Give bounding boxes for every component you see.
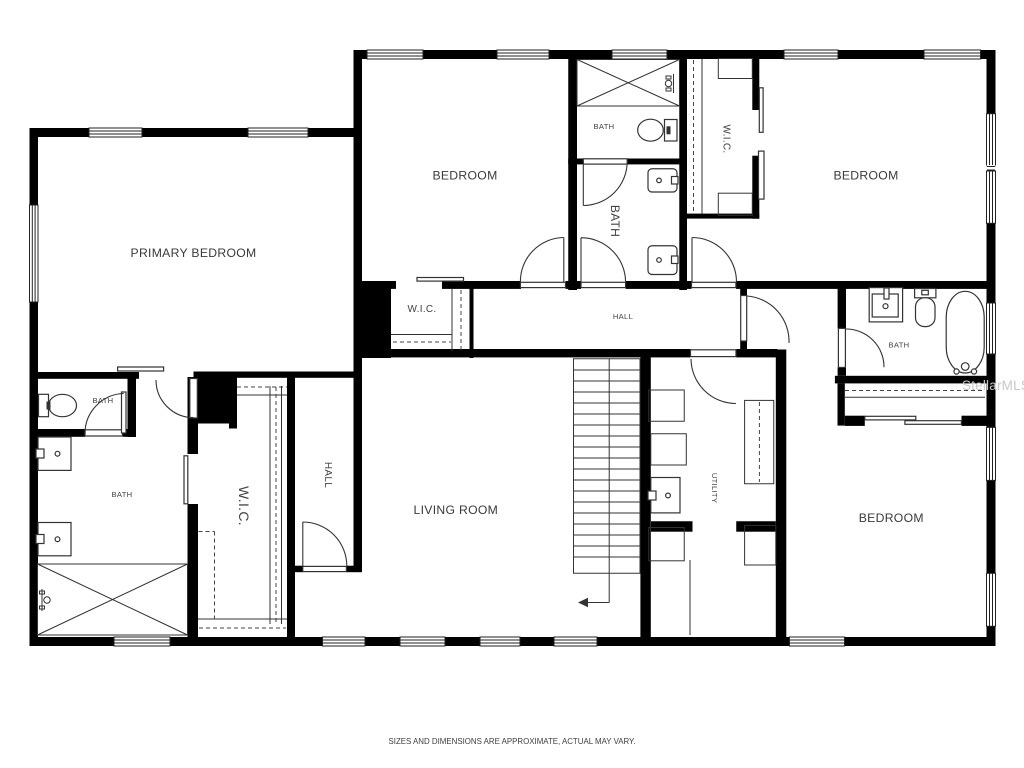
svg-text:StellarMLS: StellarMLS (962, 378, 1024, 393)
svg-text:BEDROOM: BEDROOM (432, 168, 497, 182)
svg-text:PRIMARY BEDROOM: PRIMARY BEDROOM (131, 246, 257, 260)
svg-text:BATH: BATH (594, 122, 615, 131)
svg-text:BATH: BATH (889, 341, 910, 350)
svg-text:BEDROOM: BEDROOM (859, 511, 924, 525)
svg-text:BEDROOM: BEDROOM (833, 168, 898, 182)
svg-text:W.I.C.: W.I.C. (236, 486, 252, 526)
svg-text:LIVING ROOM: LIVING ROOM (414, 503, 499, 517)
svg-text:BATH: BATH (93, 396, 114, 405)
svg-text:BATH: BATH (112, 490, 133, 499)
svg-text:W.I.C.: W.I.C. (721, 124, 732, 153)
svg-text:HALL: HALL (613, 312, 633, 321)
svg-text:BATH: BATH (608, 205, 622, 237)
svg-text:SIZES AND DIMENSIONS ARE APPRO: SIZES AND DIMENSIONS ARE APPROXIMATE, AC… (388, 737, 635, 746)
svg-text:UTILITY: UTILITY (710, 473, 719, 503)
svg-text:W.I.C.: W.I.C. (407, 304, 436, 315)
svg-text:HALL: HALL (322, 462, 333, 488)
